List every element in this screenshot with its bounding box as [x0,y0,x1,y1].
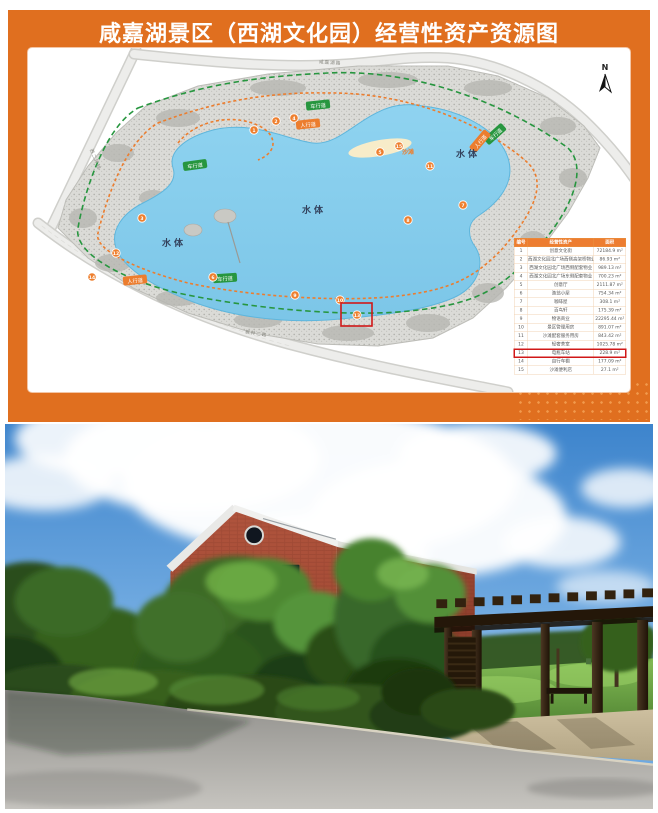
water-label: 水体 [162,237,186,249]
table-cell: 3 [514,264,528,273]
svg-text:1: 1 [252,128,255,134]
table-cell: 创意厅 [528,281,594,290]
asset-row-10: 10景区管理用房891.07 m² [514,324,626,333]
svg-text:12: 12 [113,251,119,257]
table-cell: 自行车棚 [528,358,594,367]
north-arrow: N [599,63,611,92]
svg-text:2: 2 [274,119,277,125]
map-marker-4: 4 [290,114,298,122]
table-cell: 86.93 m² [594,256,626,265]
table-cell: 22295.44 m² [594,315,626,324]
table-cell: 5 [514,281,528,290]
table-cell: 177.09 m² [594,358,626,367]
asset-row-5: 5创意厅2111.87 m² [514,281,626,290]
table-cell: 物语商业 [528,315,594,324]
map-marker-8: 8 [404,216,412,224]
table-header-cell: 编号 [514,238,528,247]
map-marker-7: 7 [459,201,467,209]
svg-text:11: 11 [427,164,433,170]
table-cell: 10 [514,324,528,333]
table-cell: 4 [514,273,528,282]
table-cell: 西湖文化园北广场东侧配套物业 [528,273,594,282]
asset-row-4: 4西湖文化园北广场东侧配套物业700.23 m² [514,273,626,282]
table-cell: 11 [514,332,528,341]
screenshot-root: 咸嘉湖景区（西湖文化园）经营性资产资源图 [0,0,658,813]
table-cell: 15 [514,366,528,375]
map-marker-6: 6 [209,273,217,281]
asset-row-7: 7咖啡屋308.1 m² [514,298,626,307]
map-marker-11: 11 [426,162,434,170]
table-cell: 轻奢茶室 [528,341,594,350]
svg-text:15: 15 [396,144,402,150]
island [214,209,236,223]
table-header-cell: 面积 [594,238,626,247]
svg-text:5: 5 [378,150,381,156]
asset-row-9: 9物语商业22295.44 m² [514,315,626,324]
asset-table-header: 编号经营性资产面积 [514,238,626,247]
poster-title: 咸嘉湖景区（西湖文化园）经营性资产资源图 [8,16,650,48]
table-cell: 989.13 m² [594,264,626,273]
table-cell: 891.07 m² [594,324,626,333]
svg-text:7: 7 [461,203,464,209]
asset-row-6: 6渔翁小屋754.34 m² [514,290,626,299]
asset-row-1: 1创意文化街72184.9 m² [514,247,626,256]
map-marker-5: 5 [376,148,384,156]
table-cell: 7 [514,298,528,307]
table-header-cell: 经营性资产 [528,238,594,247]
site-photograph [5,424,653,809]
table-cell: 700.23 m² [594,273,626,282]
table-cell: 2111.87 m² [594,281,626,290]
table-cell: 景区管理用房 [528,324,594,333]
table-cell: 沙滩便利店 [528,366,594,375]
table-cell: 8 [514,307,528,316]
asset-table-body: 1创意文化街72184.9 m²2西湖文化园北广场西侧高架桥物业86.93 m²… [514,247,626,375]
map-card: 沙滩 车行道车行道车行道车行道人行道人行道人行道 水体水体水体 咸嘉湖路西二环线… [28,48,630,392]
table-cell: 175.39 m² [594,307,626,316]
table-cell: 14 [514,358,528,367]
table-cell: 13 [514,349,528,358]
table-cell: 228.9 m² [594,349,626,358]
table-cell: 沙滩配套服务用房 [528,332,594,341]
map-marker-13: 13 [353,311,361,319]
asset-table: 编号经营性资产面积 1创意文化街72184.9 m²2西湖文化园北广场西侧高架桥… [514,238,626,375]
table-cell: 电瓶车站 [528,349,594,358]
map-marker-3: 3 [138,214,146,222]
table-cell: 渔翁小屋 [528,290,594,299]
asset-row-11: 11沙滩配套服务用房843.42 m² [514,332,626,341]
asset-row-8: 8百鸟轩175.39 m² [514,307,626,316]
asset-map-poster: 咸嘉湖景区（西湖文化园）经营性资产资源图 [8,10,650,422]
svg-text:3: 3 [140,216,143,222]
asset-row-15: 15沙滩便利店27.1 m² [514,366,626,375]
photo-illustration [5,424,653,809]
map-marker-1: 1 [250,126,258,134]
table-cell: 西湖文化园北广场西侧配套物业 [528,264,594,273]
beach-label: 沙滩 [402,148,414,156]
svg-text:14: 14 [89,275,95,281]
svg-text:13: 13 [354,313,360,319]
map-marker-14: 14 [88,273,96,281]
bench [547,688,592,694]
island [184,224,202,236]
map-marker-12: 12 [112,249,120,257]
table-cell: 12 [514,341,528,350]
svg-text:6: 6 [211,275,214,281]
table-cell: 西湖文化园北广场西侧高架桥物业 [528,256,594,265]
small-sign [586,658,591,664]
svg-text:8: 8 [406,218,409,224]
table-cell: 6 [514,290,528,299]
table-cell: 创意文化街 [528,247,594,256]
table-cell: 1 [514,247,528,256]
svg-text:4: 4 [292,116,295,122]
asset-row-2: 2西湖文化园北广场西侧高架桥物业86.93 m² [514,256,626,265]
asset-row-14: 14自行车棚177.09 m² [514,358,626,367]
table-cell: 308.1 m² [594,298,626,307]
table-cell: 9 [514,315,528,324]
svg-text:9: 9 [293,293,296,299]
map-marker-2: 2 [272,117,280,125]
table-cell: 咖啡屋 [528,298,594,307]
table-cell: 27.1 m² [594,366,626,375]
map-marker-9: 9 [291,291,299,299]
table-cell: 1025.78 m² [594,341,626,350]
table-cell: 754.34 m² [594,290,626,299]
round-gable-window [245,526,263,544]
table-cell: 百鸟轩 [528,307,594,316]
north-label: N [602,63,609,72]
table-cell: 2 [514,256,528,265]
table-cell: 72184.9 m² [594,247,626,256]
asset-row-13: 13电瓶车站228.9 m² [514,349,626,358]
asset-row-12: 12轻奢茶室1025.78 m² [514,341,626,350]
table-cell: 843.42 m² [594,332,626,341]
water-label: 水体 [302,204,326,216]
map-marker-15: 15 [395,142,403,150]
asset-row-3: 3西湖文化园北广场西侧配套物业989.13 m² [514,264,626,273]
water-label: 水体 [456,148,480,160]
